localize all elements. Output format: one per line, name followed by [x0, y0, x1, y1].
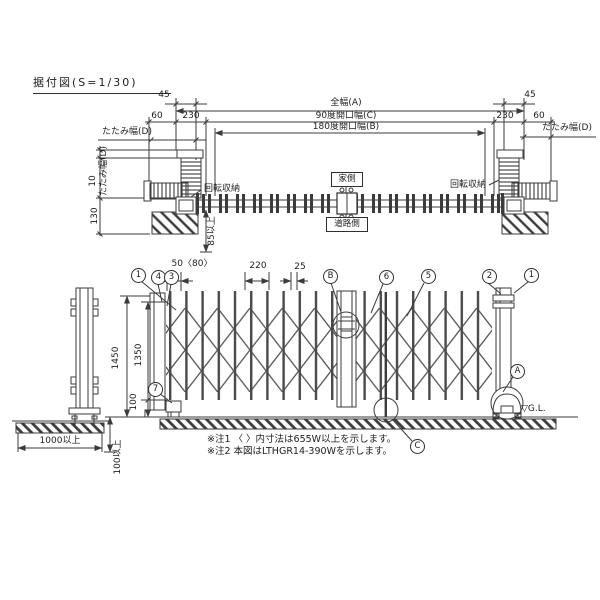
dim-60-right: 60	[529, 111, 549, 121]
callout-A: A	[510, 364, 525, 379]
dim-100-min: 100以上	[113, 437, 123, 477]
dim-1450: 1450	[111, 343, 121, 373]
left-vertical-fold-cap	[177, 150, 203, 158]
center-panel	[333, 291, 359, 407]
dim-fold-width-right: たたみ幅(D)	[538, 123, 596, 133]
label-rotate-storage-left: 回転収納	[200, 184, 244, 194]
callout-C: C	[410, 439, 425, 454]
note-2: ※注2 本図はLTHGR14-390Wを示します。	[207, 446, 392, 457]
note-1: ※注1 〈 〉内寸法は655W以上を示します。	[207, 434, 396, 445]
label-house-side: 家側	[331, 172, 363, 187]
label-rotate-storage-right: 回転収納	[446, 180, 490, 190]
callout-1-left: 1	[131, 268, 146, 283]
callout-7: 7	[148, 382, 163, 397]
dim-10: 10	[88, 173, 98, 189]
dim-1350: 1350	[134, 340, 144, 370]
right-fold-stack-endcap	[550, 181, 557, 201]
elevation-view	[12, 272, 578, 452]
dim-230-left: 230	[178, 111, 204, 121]
dim-100: 100	[129, 390, 139, 414]
right-post-elevation	[491, 288, 523, 419]
hanging-bars	[168, 291, 490, 400]
callout-3: 3	[164, 270, 179, 285]
ground-hatch-left	[16, 423, 104, 433]
installation-drawing-canvas: 据付図(S=1/30) 45 45 全幅(A) 60 230 90度開口幅(C)…	[0, 0, 600, 600]
callout-6: 6	[379, 270, 394, 285]
label-ground-level: ▽G.L.	[521, 404, 563, 414]
dim-45-left: 45	[152, 90, 176, 100]
callout-5: 5	[421, 269, 436, 284]
label-road-side: 道路側	[326, 217, 368, 232]
dim-130: 130	[90, 204, 100, 228]
dim-open-180: 180度開口幅(B)	[291, 122, 401, 132]
drawing-title: 据付図(S=1/30)	[33, 74, 171, 94]
dim-1000-min: 1000以上	[28, 436, 92, 446]
dim-fold-width-left-vertical: たたみ幅(D)	[99, 142, 109, 200]
standalone-post	[69, 288, 100, 427]
left-foundation-block	[152, 212, 198, 234]
dim-45-right: 45	[518, 90, 542, 100]
right-foundation-block	[502, 212, 548, 234]
right-vertical-fold-cap	[497, 150, 523, 158]
right-vertical-fold-stack	[499, 158, 519, 198]
dim-220: 220	[244, 261, 272, 271]
callout-1-right: 1	[524, 268, 539, 283]
dim-85-min: 85以上	[207, 216, 217, 246]
dim-open-90: 90度開口幅(C)	[291, 111, 401, 121]
dim-230-right: 230	[492, 111, 518, 121]
dim-60-left: 60	[147, 111, 167, 121]
dim-25: 25	[290, 262, 310, 272]
dim-total-width: 全幅(A)	[296, 98, 396, 108]
ground-hatch-main	[160, 419, 556, 429]
callout-B: B	[323, 269, 338, 284]
dim-50-80: 50〈80〉	[170, 259, 214, 269]
left-vertical-fold-stack	[181, 158, 201, 198]
callout-2: 2	[482, 269, 497, 284]
dim-fold-width-left: たたみ幅(D)	[98, 127, 156, 137]
